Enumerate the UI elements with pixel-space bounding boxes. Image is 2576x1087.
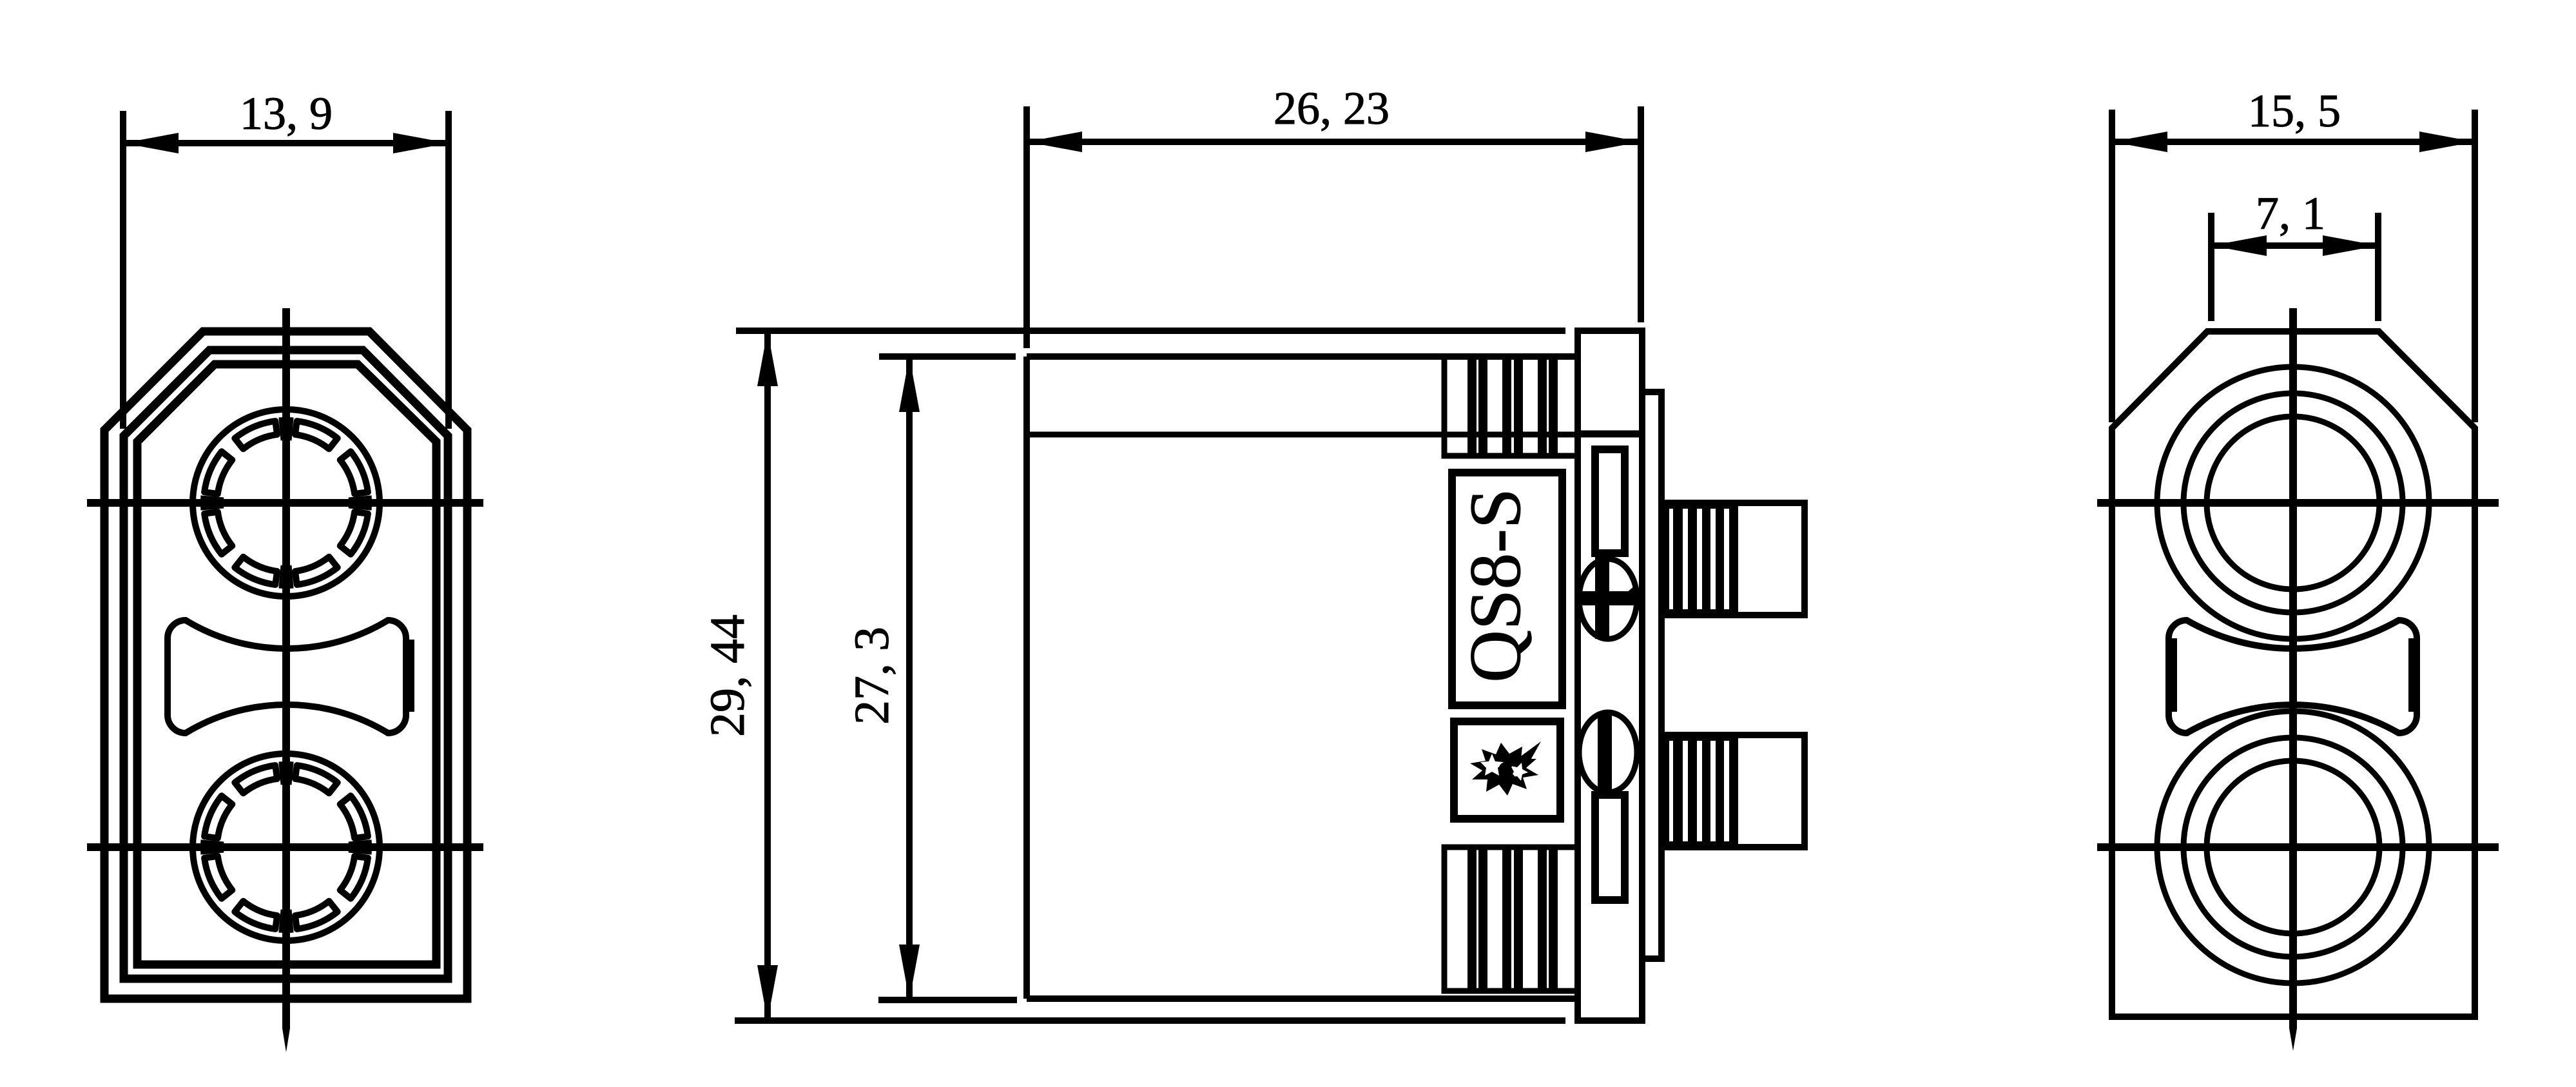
svg-text:27, 3: 27, 3 [845, 627, 899, 725]
svg-text:13, 9: 13, 9 [240, 88, 333, 139]
svg-text:QS8-S: QS8-S [1455, 488, 1536, 682]
svg-text:7, 1: 7, 1 [2256, 188, 2325, 239]
svg-text:29, 44: 29, 44 [701, 614, 755, 737]
svg-text:26, 23: 26, 23 [1273, 83, 1390, 134]
svg-text:15, 5: 15, 5 [2248, 85, 2341, 137]
